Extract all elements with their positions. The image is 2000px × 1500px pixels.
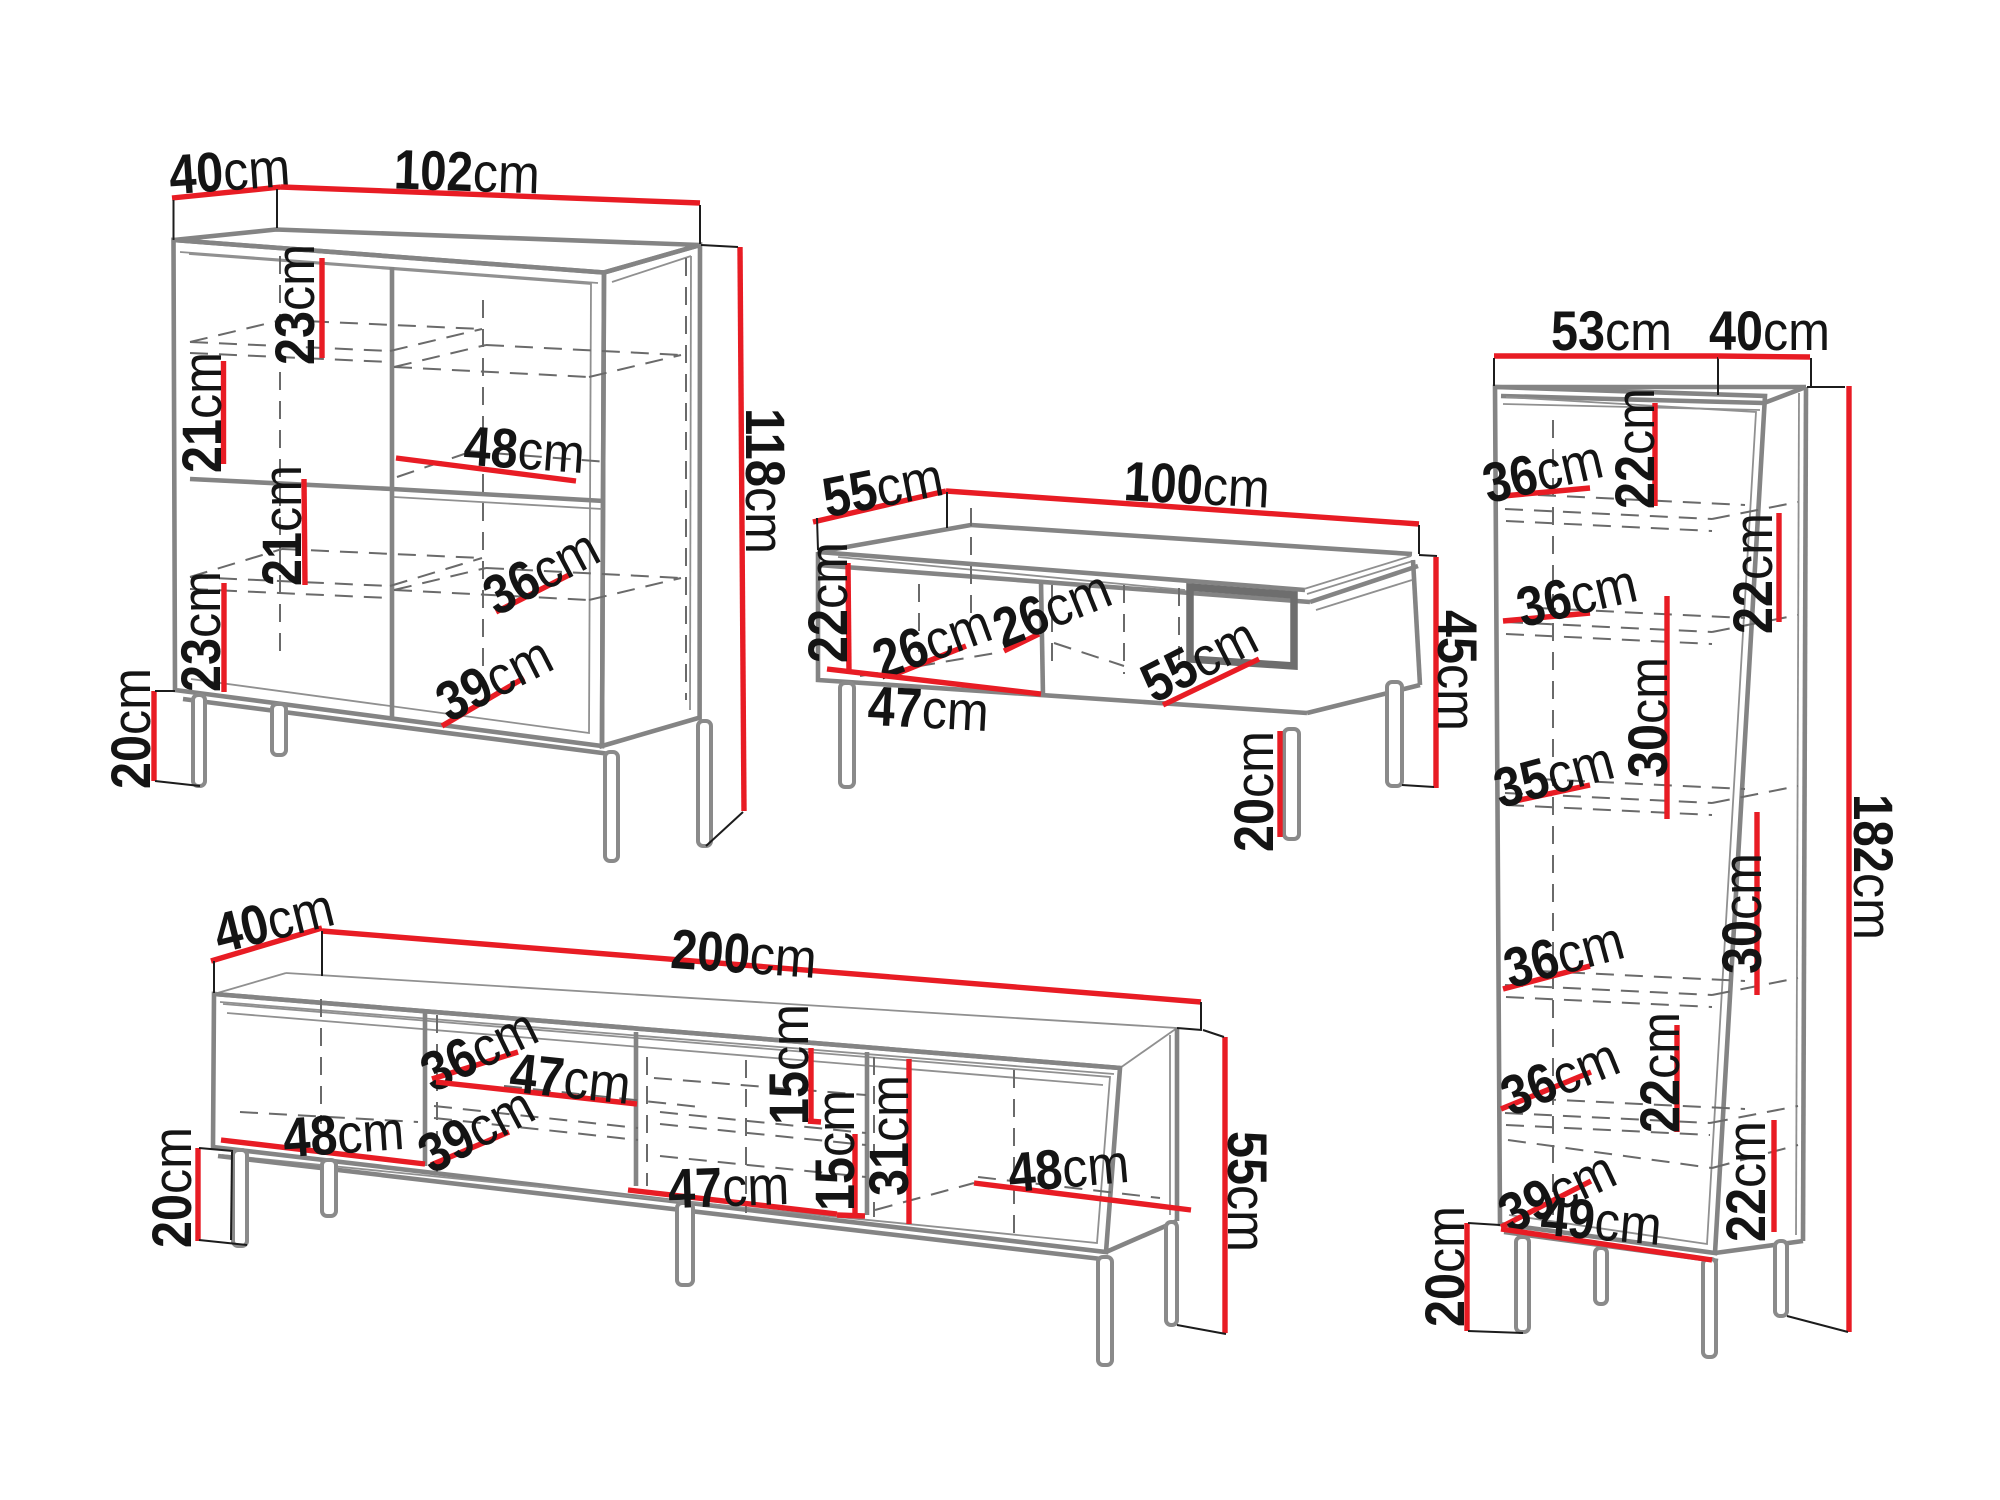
svg-text:47cm: 47cm [667,1153,790,1220]
svg-text:22cm: 22cm [796,542,859,663]
svg-text:47cm: 47cm [866,674,990,743]
svg-text:20cm: 20cm [1413,1206,1476,1327]
svg-text:100cm: 100cm [1122,449,1271,520]
svg-text:40cm: 40cm [1709,299,1830,362]
svg-text:31cm: 31cm [857,1075,920,1196]
svg-text:21cm: 21cm [250,465,313,586]
svg-text:22cm: 22cm [1603,388,1666,509]
svg-text:49cm: 49cm [1538,1184,1664,1257]
svg-text:118cm: 118cm [734,408,797,554]
svg-text:21cm: 21cm [170,352,233,473]
svg-text:20cm: 20cm [99,668,162,789]
svg-text:23cm: 23cm [169,571,232,692]
svg-text:55cm: 55cm [1216,1131,1279,1252]
svg-text:102cm: 102cm [393,137,541,205]
svg-text:22cm: 22cm [1714,1121,1777,1242]
svg-text:30cm: 30cm [1710,853,1773,974]
svg-text:23cm: 23cm [263,244,326,365]
svg-text:22cm: 22cm [1628,1012,1691,1133]
svg-text:48cm: 48cm [1006,1131,1132,1204]
svg-text:20cm: 20cm [1222,731,1285,852]
svg-text:53cm: 53cm [1551,299,1672,362]
svg-text:45cm: 45cm [1426,610,1489,731]
svg-text:40cm: 40cm [167,135,292,206]
svg-text:200cm: 200cm [669,917,819,990]
svg-text:20cm: 20cm [140,1127,203,1248]
svg-text:48cm: 48cm [281,1098,406,1169]
svg-text:48cm: 48cm [462,414,587,485]
svg-text:182cm: 182cm [1842,794,1905,940]
svg-text:30cm: 30cm [1616,657,1679,778]
svg-text:22cm: 22cm [1721,513,1784,634]
